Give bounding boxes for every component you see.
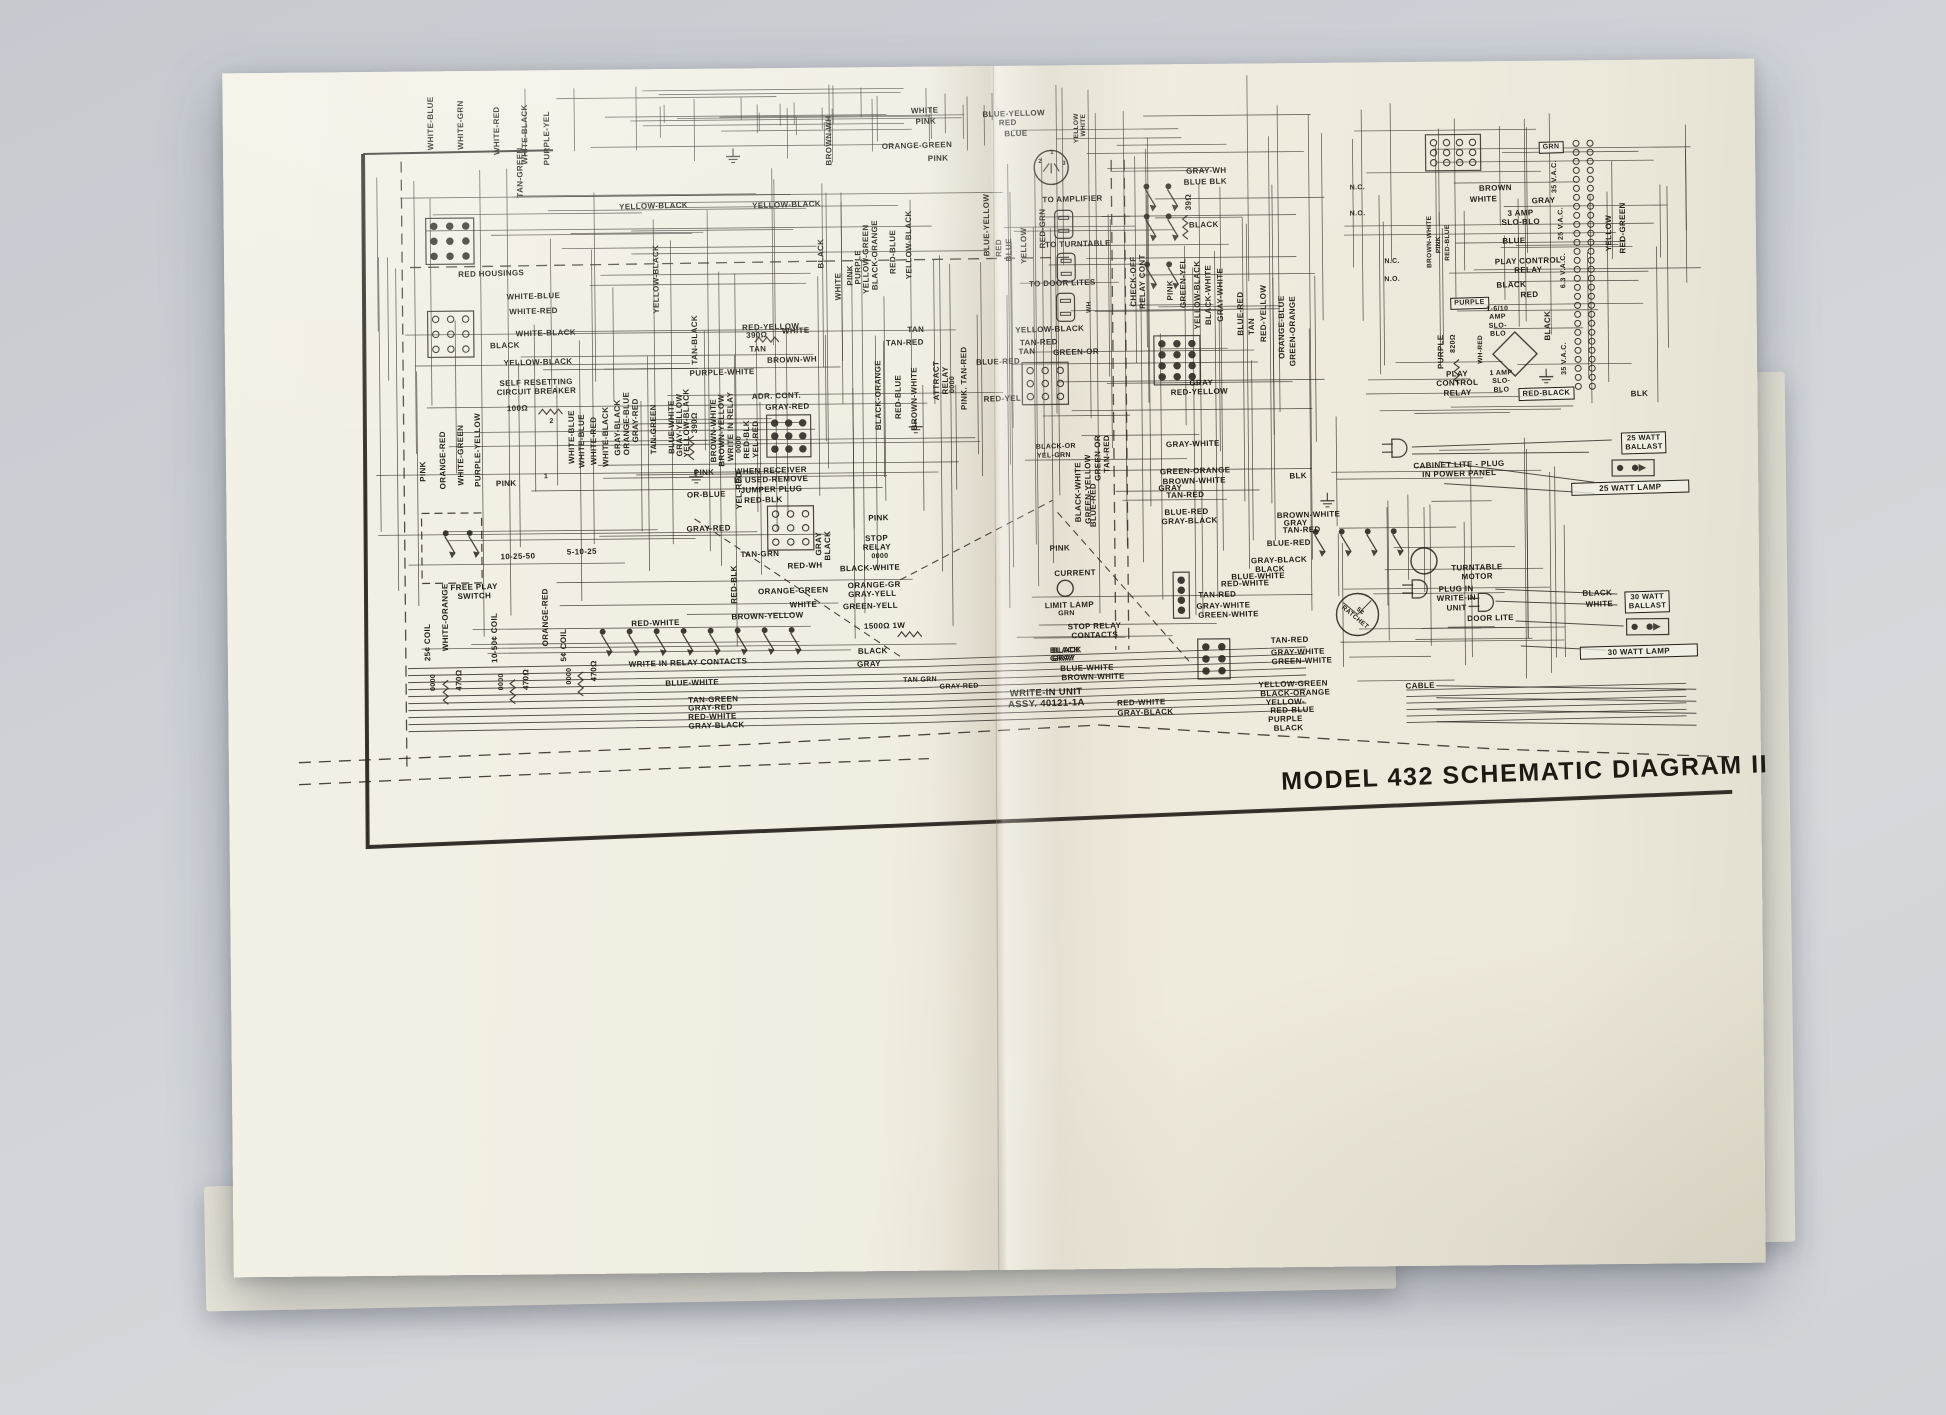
wire-label: RED-BLK <box>744 495 783 506</box>
wire-label: WHITE-GREEN <box>456 425 466 486</box>
wire-label: PLAY CONTROL RELAY <box>1436 369 1479 399</box>
wire-label: GREEN-WHITE <box>1271 655 1332 666</box>
wire-label: WHITE-RED <box>492 106 502 155</box>
wire-label: BLUE-RED <box>1236 292 1246 336</box>
wire-label: BROWN-WH <box>767 354 817 365</box>
wire-label: N.O. <box>1350 210 1366 219</box>
wire-label: GRAY-WHITE <box>1166 439 1220 450</box>
wire-label: YELLOW-BLACK <box>1192 261 1202 330</box>
wire-label: BLACK <box>816 239 826 269</box>
wire-label: BLACK <box>1543 311 1553 341</box>
wire-label: GRAY-BLACK <box>1117 707 1173 718</box>
wire-label: GREEN-WHITE <box>1198 609 1259 620</box>
wire-label: 25 WATT LAMP <box>1571 479 1689 496</box>
wire-label: YELLOW-BLACK <box>752 199 821 210</box>
wire-label: BLUE-RED <box>1267 538 1311 549</box>
wire-label: 5¢ COIL <box>559 629 569 662</box>
wire-label: TO DOOR LITES <box>1029 278 1096 289</box>
wire-label: PINK <box>496 479 517 489</box>
wire-label: TURNTABLE MOTOR <box>1451 562 1503 582</box>
wire-label: BLACK <box>1274 723 1304 733</box>
wire-label: WH-RED <box>1477 335 1485 364</box>
wire-label: YELLOW-BLACK <box>1015 324 1084 335</box>
wire-label: 5¢ RATCHET <box>1340 598 1375 631</box>
wire-label: 2 <box>549 418 553 426</box>
wire-label: BLUE-RED <box>976 357 1020 368</box>
wire-label: BLUE-WHITE <box>665 677 719 688</box>
wire-label: GREEN-ORANGE <box>1288 296 1298 367</box>
wire-label: GRAY-RED <box>686 523 731 534</box>
wire-label: BLUE <box>1502 236 1525 246</box>
wire-label: WHITE-RED <box>509 306 558 317</box>
wire-label: RED <box>994 239 1004 257</box>
wire-label: PINK <box>928 154 949 164</box>
wire-label: PLAY CONTROL RELAY <box>1495 255 1562 276</box>
wire-label: TO TURNTABLE <box>1045 239 1111 250</box>
wire-label: GRAY-YELL <box>848 589 896 600</box>
wire-label: RED <box>1520 290 1538 300</box>
wire-label: RED-WHITE <box>1117 697 1166 708</box>
wire-label: TO AMPLIFIER <box>1042 194 1102 205</box>
wire-label: WHITE <box>789 600 817 610</box>
wire-label: WHITE-BLUE <box>506 291 560 302</box>
wire-label: TAN-RED <box>1283 525 1321 536</box>
wire-label: WHITE-BLUE <box>577 414 587 468</box>
wire-label: DOOR LITE <box>1467 613 1514 624</box>
wire-label: ATTRACT RELAY <box>932 361 951 401</box>
wire-label: PLUG IN WRITE-IN UNIT <box>1436 584 1476 613</box>
wire-label: 820Ω <box>1450 334 1458 353</box>
wire-label: BROWN-YELLOW <box>731 610 803 622</box>
wire-label: ORANGE-RED <box>540 588 550 646</box>
wire-label: PINK. TAN-RED <box>959 346 969 410</box>
wire-label: GREEN-OR <box>1053 347 1099 358</box>
wire-label: YEL-RED <box>734 472 744 510</box>
wire-label: ORANGE-RED <box>438 431 448 489</box>
wire-label: BLACK <box>1496 280 1526 290</box>
wire-label: RED HOUSINGS <box>458 268 524 279</box>
wire-label: 390Ω <box>746 330 767 340</box>
wire-label: 10-50¢ COIL <box>490 613 500 663</box>
wire-label: N.C. <box>1384 258 1400 267</box>
wire-label: YELLOW-BLACK <box>904 210 914 279</box>
wire-label: RED-BLUE <box>1444 224 1452 260</box>
wire-label: PURPLE-YELLOW <box>473 413 483 487</box>
wire-labels-layer: WHITE-BLUEWHITE-GRNWHITE-REDWHITE-BLACKP… <box>222 59 1765 1278</box>
wire-label: PINK <box>868 513 889 523</box>
wire-label: WHITE-BLACK <box>601 407 611 467</box>
wire-label: RED-BLUE <box>888 230 898 274</box>
wire-label: BLACK <box>858 646 888 656</box>
wire-label: 10-25-50 <box>500 551 535 561</box>
wire-label: TAN-RED <box>1198 590 1236 601</box>
wire-label: RED-YEL <box>984 394 1022 405</box>
wire-label: BLACK-WHITE <box>1203 265 1213 325</box>
wire-label: 3 AMP SLO-BLO <box>1501 208 1540 228</box>
wire-label: CURRENT <box>1054 568 1096 579</box>
wire-label: CABLE <box>1405 681 1435 691</box>
wire-label: BLACK-ORANGE <box>873 360 883 430</box>
wire-label: GRAY-RED <box>765 402 810 413</box>
wire-label: 0000 <box>566 668 574 685</box>
wire-label: BLUE <box>1004 238 1014 261</box>
wire-label: ORANGE-GREEN <box>758 585 829 596</box>
wire-label: GRAY-BLACK <box>688 720 744 731</box>
wire-label: 0000 <box>736 436 744 453</box>
wire-label: 1 <box>1050 150 1054 157</box>
wire-label: BLACK <box>823 531 833 561</box>
wire-label: WHEN RECEIVER IS USED-REMOVE JUMPER PLUG <box>734 465 809 495</box>
wire-label: BROWN-WH <box>824 116 834 166</box>
wire-label: BLK <box>1289 471 1307 481</box>
wire-label: GRN <box>1058 610 1075 619</box>
wire-label: YEL-RED <box>751 420 761 458</box>
wire-label: TAN-GRN <box>740 549 779 560</box>
wire-label: 3 <box>1062 161 1066 168</box>
wire-label: PINK <box>1049 543 1070 553</box>
wire-label: 30 WATT BALLAST <box>1624 590 1670 613</box>
wire-label: 35 V.A.C. <box>1561 342 1570 375</box>
wire-label: YELLOW <box>1604 215 1614 251</box>
wire-label: 1500Ω 1W <box>864 621 905 632</box>
wire-label: RED <box>999 118 1017 128</box>
wire-label: WRITE IN RELAY <box>726 392 736 462</box>
wire-label: GRAY-BLACK <box>1161 516 1217 527</box>
wire-label: WHITE <box>1470 194 1498 204</box>
wire-label: BLACK <box>490 341 520 351</box>
wire-label: PINK <box>1166 280 1176 301</box>
wire-label: ORANGE-GREEN <box>882 140 953 151</box>
wire-label: GREEN-YELL <box>843 601 898 612</box>
wire-label: RED-WH <box>787 561 822 571</box>
wire-label: 39Ω <box>1184 194 1194 210</box>
wire-label: WHITE-BLACK <box>515 328 576 339</box>
wire-label: BLACK <box>1189 220 1219 230</box>
wire-label: ORANGE-BLUE <box>1277 295 1287 358</box>
wire-label: BLUE <box>1004 129 1027 139</box>
wire-label: BLACK-WHITE <box>840 563 901 574</box>
wire-label: WHITE <box>1586 599 1614 609</box>
wire-label: 100Ω <box>507 404 528 414</box>
wire-label: 2 <box>1038 159 1042 166</box>
wire-label: TAN-RED <box>1166 490 1204 501</box>
wire-label: PINK <box>1435 236 1443 253</box>
wire-label: WH <box>1086 301 1094 313</box>
wire-label: WHITE-BLUE <box>426 96 436 150</box>
wire-label: FREE PLAY SWITCH <box>450 582 498 602</box>
wire-label: WHITE <box>1080 114 1088 137</box>
wire-label: WHITE <box>911 106 939 116</box>
wire-label: BLK <box>1631 389 1649 399</box>
wire-label: WRITE-IN UNIT ASSY. 40121-1A <box>1008 686 1085 711</box>
wire-label: TAN <box>1247 318 1257 335</box>
wire-label: TAN-BLACK <box>690 315 700 365</box>
wire-label: GRAY <box>1532 196 1556 206</box>
wire-label: WHITE-ORANGE <box>440 583 450 651</box>
wire-label: RED-BLK <box>729 565 739 604</box>
wire-label: LIMIT LAMP <box>1045 600 1095 611</box>
wire-label: CHECK-OFF RELAY CONT <box>1129 254 1148 309</box>
wire-label: BLUE-RED <box>1089 483 1099 527</box>
wire-label: BLACK-WHITE <box>1073 462 1083 522</box>
schematic-paper: WHITE-BLUEWHITE-GRNWHITE-REDWHITE-BLACKP… <box>222 59 1765 1278</box>
wire-label: 30 WATT LAMP <box>1580 643 1698 660</box>
wire-label: WHITE-BLUE <box>567 410 577 464</box>
wire-label: RED-YELLOW <box>1171 386 1229 397</box>
wire-label: GRAY <box>1052 653 1076 663</box>
wire-label: RED-WHITE <box>631 618 680 629</box>
wire-label: TAN-GREEN <box>649 404 659 454</box>
wire-label: 25 WATT BALLAST <box>1621 431 1667 454</box>
wire-label: TAN <box>907 325 924 335</box>
wire-label: ADR. CONT. <box>752 391 802 402</box>
wire-label: BLACK-OR <box>1036 443 1076 452</box>
wire-label: 5-10-25 <box>567 547 597 557</box>
wire-label: BROWN-WHITE <box>1061 671 1125 682</box>
wire-label: WHITE <box>833 273 843 301</box>
wire-label: STOP RELAY <box>862 533 891 553</box>
wire-label: RED-BLUE <box>893 375 903 419</box>
wire-label: WHITE <box>782 326 810 336</box>
wire-label: TAN-RED <box>1102 435 1112 473</box>
wire-label: GRAY-RED <box>631 398 641 442</box>
wire-label: BROWN-WHITE <box>1426 216 1434 268</box>
wire-label: N.O. <box>1384 276 1400 285</box>
wire-label: RED-GREEN <box>1618 202 1628 253</box>
wire-label: GREEN-YEL <box>1178 258 1188 308</box>
wire-label: 25¢ COIL <box>423 624 433 662</box>
wire-label: BLACK-ORANGE <box>870 220 880 290</box>
wire-label: RED-WHITE <box>1221 578 1270 589</box>
wire-label: GRAY-RED <box>940 683 979 692</box>
wire-label: PURPLE <box>1450 297 1489 310</box>
wire-label: WHITE-GRN <box>456 100 466 149</box>
wire-label: N.C. <box>1350 184 1366 193</box>
wire-label: PURPLE <box>1436 334 1446 369</box>
wire-label: YELLOW-BLACK <box>619 201 688 212</box>
wire-label: TAN-RED <box>886 338 924 349</box>
wire-label: BLUE-YELLOW <box>982 194 992 257</box>
wire-label: GRAY-WHITE <box>1215 268 1225 322</box>
wire-label: YEL-GRN <box>1037 452 1071 461</box>
wire-label: GRN <box>1539 141 1564 154</box>
wire-label: 0000 <box>498 673 506 690</box>
wire-label: GRAY <box>857 659 881 669</box>
wire-label: 1-6/10 AMP SLO- BLO <box>1486 305 1509 339</box>
wire-label: 1 AMP SLO- BLO <box>1489 369 1513 394</box>
wire-label: BLUE BLK <box>1184 177 1228 188</box>
wire-label: TAN <box>1018 347 1035 357</box>
wire-label: GRAY-WH <box>1186 166 1227 177</box>
wire-label: WRITE IN RELAY CONTACTS <box>629 657 748 670</box>
wire-label: YELLOW <box>1019 227 1029 263</box>
wire-label: YELLOW-BLACK <box>503 357 572 368</box>
wire-label: TAN GRN <box>903 676 937 685</box>
wire-label: CABINET LITE - PLUG IN POWER PANEL <box>1413 459 1505 480</box>
wire-label: PINK <box>418 461 428 482</box>
wire-label: 1 <box>544 473 548 481</box>
wire-label: BROWN-WHITE <box>909 367 919 430</box>
wire-label: TAN-RED <box>1271 635 1309 646</box>
wire-label: TAN <box>749 344 766 354</box>
wire-label: PURPLE-YEL <box>542 111 552 165</box>
wire-label: PURPLE-WHITE <box>689 367 754 378</box>
wire-label: PINK <box>694 468 715 478</box>
wire-label: PINK <box>915 117 936 127</box>
wire-label: 470Ω <box>589 660 599 681</box>
wire-label: STOP RELAY CONTACTS <box>1068 621 1122 641</box>
wire-label: 470Ω <box>521 669 531 690</box>
wire-label: TAN-GREEN <box>515 147 525 197</box>
wire-label: BROWN <box>1479 183 1512 193</box>
wire-label: 0000 <box>430 674 438 691</box>
wire-label: 390Ω <box>690 412 700 433</box>
wire-label: 470Ω <box>454 670 464 691</box>
wire-label: SELF RESETTING CIRCUIT BREAKER <box>496 377 576 398</box>
wire-label: WHITE-RED <box>589 417 599 466</box>
wire-label: 0000 <box>949 376 957 393</box>
wire-label: 35 V.A.C. <box>1551 160 1560 193</box>
wire-label: BLACK <box>1582 588 1612 598</box>
wire-label: 25 V.A.C. <box>1557 207 1566 240</box>
wire-label: 0000 <box>871 553 888 562</box>
wire-label: RED-BLACK <box>1518 386 1574 400</box>
wire-label: RED-YELLOW <box>1259 285 1269 342</box>
wire-label: YELLOW-BLACK <box>651 245 661 314</box>
photo-scene: WHITE-BLUEWHITE-GRNWHITE-REDWHITE-BLACKP… <box>0 0 1946 1415</box>
wire-label: OR-BLUE <box>687 489 726 500</box>
